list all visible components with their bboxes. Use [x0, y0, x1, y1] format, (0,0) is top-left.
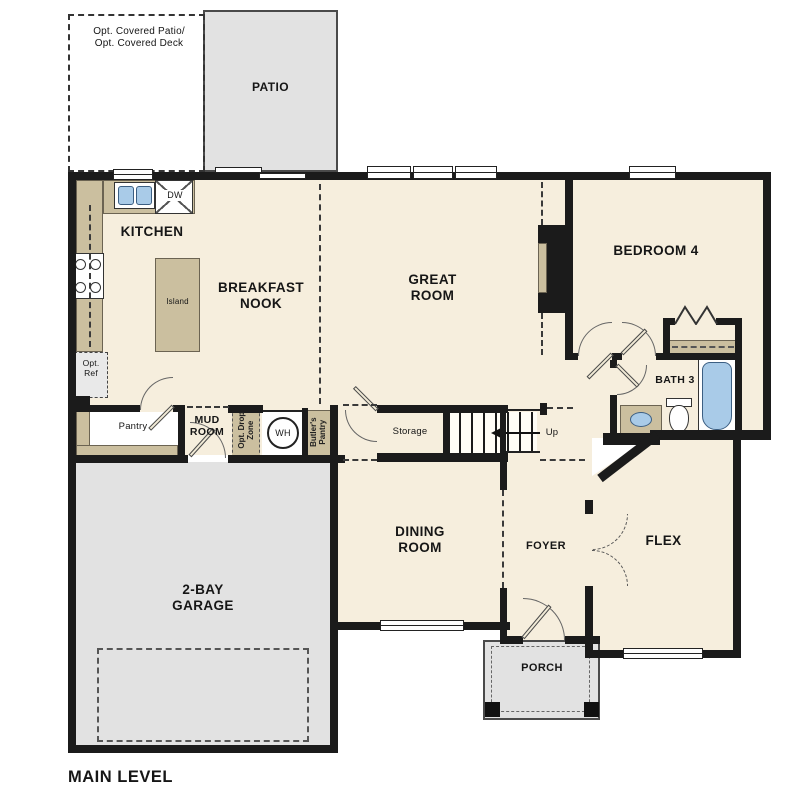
- media-wall-dash-bottom: [541, 313, 543, 355]
- wall: [565, 353, 578, 360]
- media-wall-dash-top: [541, 182, 543, 225]
- stove-burner: [75, 259, 86, 270]
- dining-window: [380, 620, 464, 631]
- opt-covered-patio-label: Opt. Covered Patio/ Opt. Covered Deck: [80, 26, 198, 50]
- wall: [302, 408, 308, 458]
- dining-foyer-opening: [502, 490, 504, 588]
- porch-inner-outline: [491, 646, 590, 712]
- breakfast-nook-label: BREAKFAST NOOK: [206, 280, 316, 312]
- wall: [377, 453, 508, 462]
- kitchen-sink: [114, 182, 155, 209]
- bathtub: [702, 362, 732, 430]
- wall: [500, 588, 507, 636]
- nook-passage-opening-top: [343, 404, 377, 406]
- porch-post-left: [485, 702, 500, 717]
- nook-greatroom-divider: [319, 184, 321, 404]
- bath3-label: BATH 3: [645, 374, 705, 386]
- patio-slider-panel: [259, 173, 306, 179]
- wall: [500, 462, 507, 490]
- butlers-pantry-label: Butler's Pantry: [309, 392, 327, 472]
- flex-window: [623, 648, 703, 659]
- bedroom4-window: [629, 166, 676, 179]
- fireplace-insert: [538, 243, 547, 293]
- stove-burner: [90, 282, 101, 293]
- garage-apron-outline: [97, 648, 309, 742]
- wall: [663, 318, 670, 360]
- exterior-notch: [741, 440, 771, 456]
- counter-option-dash: [89, 205, 91, 347]
- wall: [733, 438, 741, 658]
- porch-post-right: [584, 702, 599, 717]
- patio-slider-panel: [215, 167, 262, 173]
- wall: [68, 745, 338, 753]
- wall: [763, 172, 771, 438]
- great-room-window: [413, 166, 453, 179]
- stair-edge-top: [506, 409, 540, 411]
- dishwasher: DW: [155, 180, 193, 214]
- plan-title: MAIN LEVEL: [68, 768, 238, 787]
- patio-label: PATIO: [203, 80, 338, 94]
- mud-room-label: MUD ROOM: [181, 414, 233, 439]
- bedroom4-label: BEDROOM 4: [600, 243, 712, 259]
- garage-label: 2-BAY GARAGE: [158, 582, 248, 614]
- wall: [585, 586, 593, 650]
- wall: [735, 318, 742, 440]
- great-room-window: [367, 166, 411, 179]
- wall: [565, 172, 573, 358]
- wall: [500, 636, 523, 644]
- wall: [612, 353, 622, 360]
- up-label: Up: [541, 427, 563, 438]
- kitchen-window: [113, 169, 153, 180]
- up-arrow-line: [500, 432, 540, 434]
- stair-edge-bottom: [506, 451, 540, 453]
- wall: [500, 405, 506, 460]
- wall: [610, 395, 617, 437]
- dishwasher-label: DW: [163, 190, 187, 201]
- island-label: Island: [155, 297, 200, 306]
- wall: [540, 403, 547, 415]
- pantry-label: Pantry: [98, 421, 168, 432]
- floor-plan: DW WH: [0, 0, 810, 810]
- water-heater-label: WH: [275, 428, 290, 439]
- stove-burner: [75, 282, 86, 293]
- porch-label: PORCH: [510, 662, 574, 675]
- great-room-label: GREAT ROOM: [385, 272, 480, 304]
- kitchen-label: KITCHEN: [112, 224, 192, 240]
- wall: [650, 430, 743, 440]
- vanity-sink: [630, 412, 652, 427]
- foyer-label: FOYER: [515, 540, 577, 553]
- toilet-bowl: [669, 405, 689, 433]
- stove-burner: [90, 259, 101, 270]
- hall-opening-bottom: [540, 459, 585, 461]
- closet-bifold-doors: [674, 305, 718, 325]
- hall-opening-top: [547, 407, 573, 409]
- sink-basin-right: [136, 186, 152, 205]
- opt-ref-label: Opt. Ref: [74, 358, 108, 378]
- mudroom-opening: [187, 406, 229, 408]
- wall: [68, 455, 188, 463]
- wall: [76, 405, 140, 412]
- wall: [443, 405, 450, 460]
- wall: [565, 636, 600, 644]
- storage-label: Storage: [380, 426, 440, 437]
- dining-room-label: DINING ROOM: [375, 524, 465, 556]
- water-heater: WH: [267, 417, 299, 449]
- opt-drop-zone-label: Opt. Drop Zone: [237, 385, 255, 475]
- nook-passage-opening-bottom: [343, 459, 377, 461]
- great-room-window: [455, 166, 497, 179]
- wall: [585, 500, 593, 514]
- sink-basin-left: [118, 186, 134, 205]
- closet-shelf-rod: [672, 346, 734, 348]
- flex-label: FLEX: [636, 533, 691, 549]
